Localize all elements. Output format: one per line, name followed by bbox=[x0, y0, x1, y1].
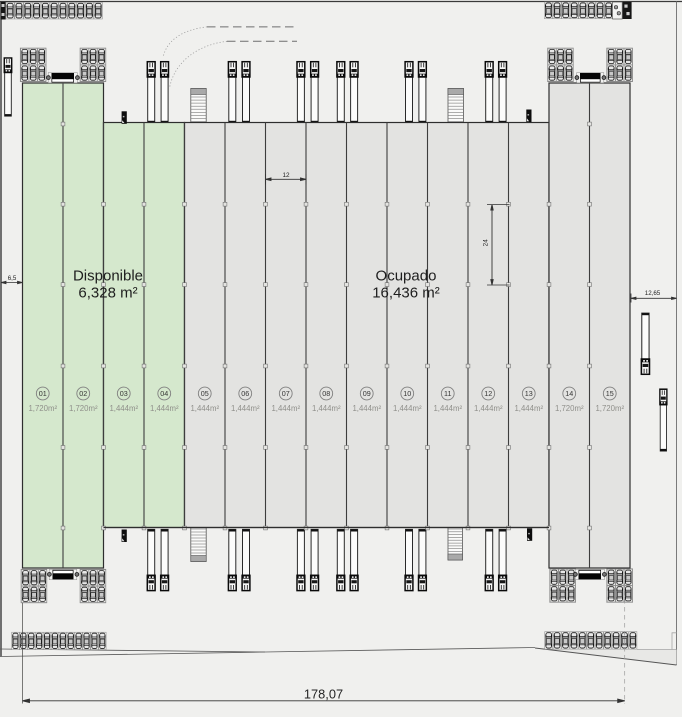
svg-text:1,720m²: 1,720m² bbox=[595, 404, 624, 413]
svg-text:1,444m²: 1,444m² bbox=[433, 404, 462, 413]
svg-text:14: 14 bbox=[565, 389, 573, 398]
svg-text:07: 07 bbox=[282, 389, 290, 398]
svg-text:178,07: 178,07 bbox=[304, 686, 343, 701]
svg-text:12: 12 bbox=[282, 172, 290, 179]
svg-text:1,444m²: 1,444m² bbox=[393, 404, 422, 413]
svg-text:1,720m²: 1,720m² bbox=[555, 404, 584, 413]
svg-text:1,444m²: 1,444m² bbox=[109, 404, 138, 413]
svg-text:6,5: 6,5 bbox=[8, 275, 17, 282]
svg-text:1,720m²: 1,720m² bbox=[28, 404, 57, 413]
svg-text:1,444m²: 1,444m² bbox=[150, 404, 179, 413]
svg-text:11: 11 bbox=[444, 389, 451, 398]
svg-text:1,720m²: 1,720m² bbox=[69, 404, 98, 413]
svg-text:13: 13 bbox=[525, 389, 533, 398]
svg-text:6,328 m²: 6,328 m² bbox=[78, 285, 137, 302]
svg-text:1,444m²: 1,444m² bbox=[514, 404, 543, 413]
svg-text:12,65: 12,65 bbox=[645, 290, 661, 297]
svg-text:1,444m²: 1,444m² bbox=[271, 404, 300, 413]
svg-text:01: 01 bbox=[39, 389, 47, 398]
svg-text:03: 03 bbox=[120, 389, 128, 398]
svg-text:02: 02 bbox=[79, 389, 87, 398]
svg-text:1,444m²: 1,444m² bbox=[312, 404, 341, 413]
svg-text:16,436 m²: 16,436 m² bbox=[372, 285, 440, 302]
svg-text:1,444m²: 1,444m² bbox=[190, 404, 219, 413]
svg-text:Disponible: Disponible bbox=[73, 268, 143, 285]
svg-text:04: 04 bbox=[160, 389, 168, 398]
svg-text:1,444m²: 1,444m² bbox=[474, 404, 503, 413]
svg-text:1,444m²: 1,444m² bbox=[352, 404, 381, 413]
svg-text:Ocupado: Ocupado bbox=[376, 268, 437, 285]
svg-text:24: 24 bbox=[483, 239, 490, 247]
svg-text:08: 08 bbox=[322, 389, 330, 398]
svg-text:05: 05 bbox=[201, 389, 209, 398]
svg-text:10: 10 bbox=[403, 389, 411, 398]
svg-text:06: 06 bbox=[241, 389, 249, 398]
svg-text:12: 12 bbox=[484, 389, 492, 398]
svg-text:09: 09 bbox=[363, 389, 371, 398]
svg-text:1,444m²: 1,444m² bbox=[231, 404, 260, 413]
svg-text:15: 15 bbox=[606, 389, 614, 398]
